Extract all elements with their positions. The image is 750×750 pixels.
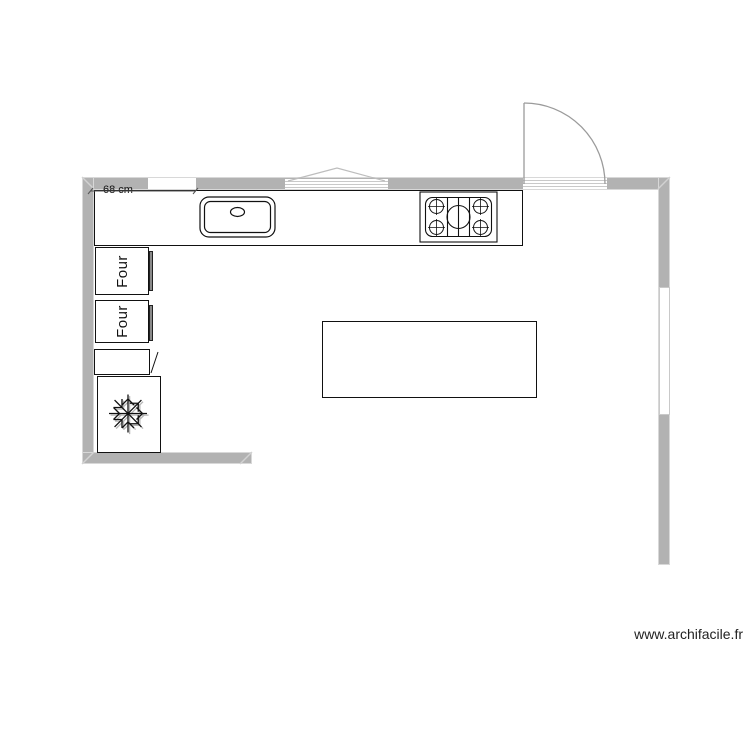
base-cabinet[interactable] [94, 349, 150, 375]
wall-left[interactable] [82, 177, 94, 464]
floor-plan-canvas: Four Four 68 cm www.archifacile.fr [0, 0, 750, 750]
freezer-unit[interactable] [97, 376, 161, 453]
watermark-link: www.archifacile.fr [634, 626, 743, 642]
oven-unit-2[interactable]: Four [95, 300, 149, 343]
cabinet-swing-tick [151, 352, 158, 373]
wall-opening-passage[interactable] [148, 178, 196, 189]
kitchen-island[interactable] [322, 321, 537, 398]
door-swing-arc-icon[interactable] [524, 103, 605, 184]
window-top[interactable] [285, 179, 388, 189]
oven-1-handle [149, 251, 153, 291]
window-right[interactable] [659, 287, 670, 415]
dimension-label: 68 cm [103, 184, 133, 196]
oven-2-handle [149, 305, 153, 341]
oven-unit-1[interactable]: Four [95, 247, 149, 295]
counter-top-run[interactable] [94, 190, 523, 246]
oven-2-label: Four [114, 305, 131, 338]
door-opening[interactable] [523, 178, 607, 189]
oven-1-label: Four [114, 255, 131, 288]
wall-bottom-left[interactable] [82, 452, 252, 464]
